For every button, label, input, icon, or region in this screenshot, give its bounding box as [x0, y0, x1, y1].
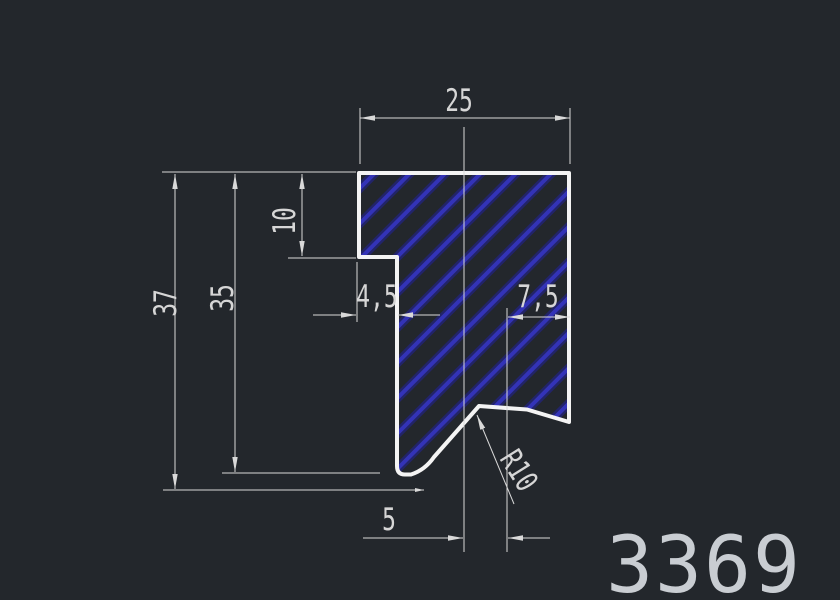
cad-viewport[interactable]: 25 10 37 35 4,5 7,5 5 R10 3369 [0, 0, 840, 600]
cad-canvas[interactable]: 25 10 37 35 4,5 7,5 5 R10 3369 [0, 0, 840, 600]
dim-label-total-height: 37 [149, 289, 184, 317]
dim-label-inner-height: 35 [206, 284, 241, 312]
dim-label-fillet-radius: R10 [492, 444, 544, 498]
dim-label-top-width: 25 [445, 84, 473, 119]
dim-label-step-width: 4,5 [356, 280, 397, 315]
dim-label-lip-height: 10 [268, 207, 303, 235]
dim-label-right-offset: 7,5 [517, 280, 558, 315]
part-number-text: 3369 [606, 521, 802, 600]
dim-label-bottom-offset: 5 [382, 503, 396, 538]
